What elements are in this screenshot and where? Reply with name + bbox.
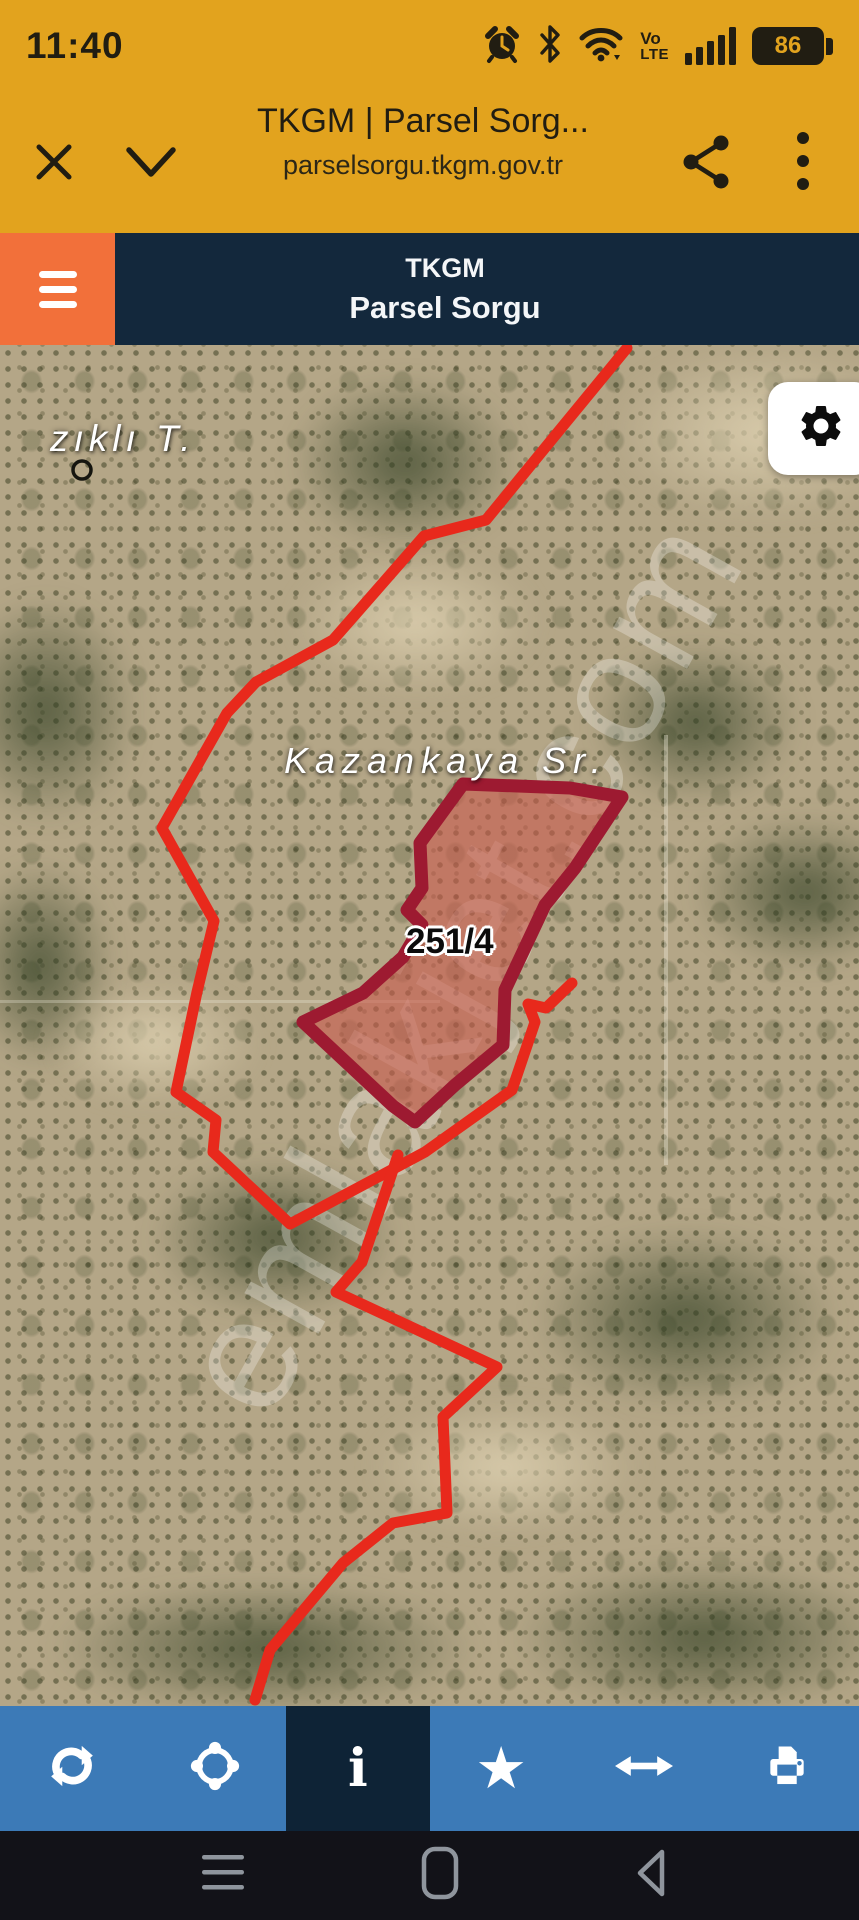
volte-icon: Vo LTE — [640, 30, 669, 62]
page-title-block[interactable]: TKGM | Parsel Sorg... parselsorgu.tkgm.g… — [188, 102, 658, 181]
back-icon[interactable] — [633, 1847, 667, 1904]
chevron-down-icon[interactable] — [118, 132, 184, 192]
info-icon: i — [348, 1743, 368, 1795]
star-icon: ★ — [475, 1740, 527, 1798]
share-icon[interactable] — [676, 130, 736, 194]
street-label: Kazankaya Sr. — [284, 740, 608, 782]
signal-icon — [685, 27, 736, 65]
printer-icon — [762, 1741, 812, 1796]
gear-icon — [796, 401, 846, 456]
cadastral-boundary-zigzag — [255, 1155, 497, 1700]
map-toolbar: i ★ — [0, 1706, 859, 1831]
app-title: TKGM Parsel Sorgu — [115, 233, 859, 345]
phone-screen: 11:40 — [0, 0, 859, 1920]
locate-icon — [189, 1740, 241, 1797]
android-nav-bar — [0, 1831, 859, 1920]
measure-button[interactable] — [573, 1706, 716, 1831]
menu-icon[interactable] — [200, 1849, 246, 1902]
app-title-line2: Parsel Sorgu — [349, 290, 540, 326]
overflow-menu-icon[interactable] — [778, 128, 828, 194]
close-icon[interactable] — [24, 132, 84, 192]
map-settings-button[interactable] — [768, 382, 859, 475]
status-icons: Vo LTE 86 — [482, 24, 833, 69]
page-url: parselsorgu.tkgm.gov.tr — [188, 150, 658, 181]
app-title-line1: TKGM — [405, 253, 484, 284]
wifi-icon — [578, 25, 624, 68]
page-title: TKGM | Parsel Sorg... — [188, 102, 658, 141]
battery-percent: 86 — [752, 27, 824, 65]
favorite-button[interactable]: ★ — [430, 1706, 573, 1831]
satellite-map[interactable]: emlakjet.com zıklı T. Kazankaya Sr. 251/… — [0, 345, 859, 1706]
print-button[interactable] — [716, 1706, 859, 1831]
bluetooth-icon — [538, 25, 562, 68]
app-header: TKGM Parsel Sorgu — [0, 233, 859, 345]
horizontal-arrows-icon — [615, 1751, 673, 1786]
parcel-boundaries-overlay — [0, 345, 859, 1706]
hamburger-menu-icon[interactable] — [0, 233, 115, 345]
place-label: zıklı T. — [50, 418, 196, 460]
status-bar: 11:40 — [0, 0, 859, 92]
home-icon[interactable] — [420, 1845, 460, 1906]
refresh-icon — [47, 1741, 97, 1796]
browser-custom-tab-bar: TKGM | Parsel Sorg... parselsorgu.tkgm.g… — [0, 92, 859, 233]
refresh-button[interactable] — [0, 1706, 143, 1831]
info-button[interactable]: i — [286, 1706, 429, 1831]
locate-button[interactable] — [143, 1706, 286, 1831]
clock-time: 11:40 — [26, 25, 124, 67]
battery-icon: 86 — [752, 27, 833, 65]
map-point-marker — [73, 461, 91, 479]
alarm-icon — [482, 24, 522, 69]
parcel-number-label: 251/4 — [406, 922, 494, 962]
